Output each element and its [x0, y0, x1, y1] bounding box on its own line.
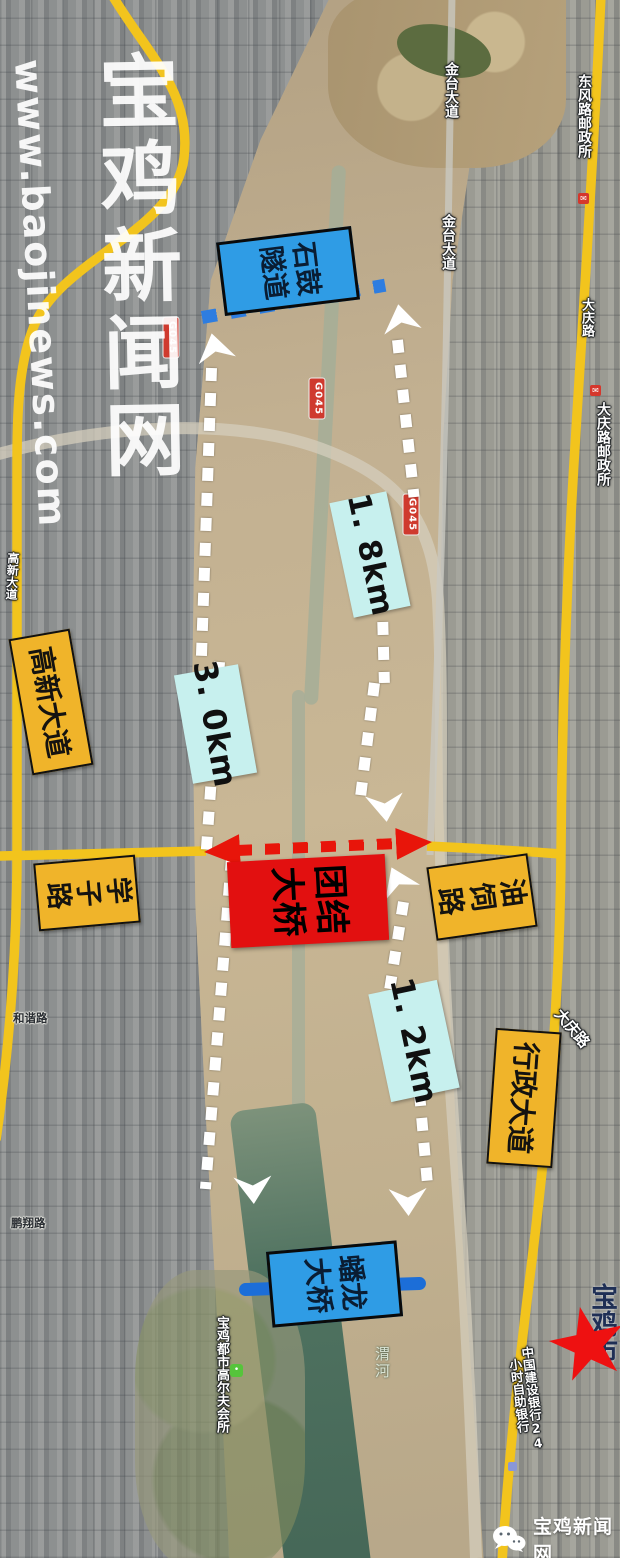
g045-highway-shield: G045: [309, 378, 326, 420]
yousi-road-box: 油饲路: [426, 853, 537, 940]
tunnel-label-text: 石鼓隧道: [252, 237, 325, 305]
site-logo: 宝鸡新闻网: [492, 1512, 620, 1558]
distance-text: 3. 0km: [186, 657, 246, 790]
daqing-post-office-label: 大庆路邮政所: [593, 402, 613, 486]
daqing-road-label-north: 大庆路: [577, 298, 596, 337]
tuanjie-bridge-box: 团结大桥: [227, 854, 389, 948]
panlong-bridge-box: 蟠龙大桥: [266, 1240, 403, 1327]
small-road-label: 鹏翔路: [11, 1215, 46, 1231]
g045-highway-shield: G045: [403, 494, 420, 536]
bank-icon: [508, 1462, 517, 1471]
jintai-avenue-label-south: 金台大道: [438, 214, 458, 270]
post-office-icon: ✉: [590, 385, 601, 396]
gaoxin-road-small-label: 高新大道: [3, 552, 22, 601]
gaoxin-avenue-text: 高新大道: [22, 643, 81, 760]
xuezi-road-text: 学子路: [40, 873, 133, 913]
yellow-road-yousi: [427, 846, 561, 854]
yellow-road-xuezi: [0, 851, 206, 856]
panlong-bridge-text: 蟠龙大桥: [298, 1250, 372, 1319]
site-logo-text: 宝鸡新闻网: [533, 1512, 620, 1558]
watermark-site-name: 宝鸡新闻网: [73, 49, 198, 591]
distance-text: 1. 2km: [382, 974, 446, 1108]
golf-icon: •: [230, 1364, 243, 1377]
dongfeng-post-office-label: 东风路邮政所: [574, 74, 594, 158]
wei-river-label: 渭河: [372, 1346, 393, 1380]
golf-club-label: 宝鸡都市高尔夫会所: [212, 1316, 231, 1433]
tuanjie-bridge-text: 团结大桥: [263, 859, 352, 942]
annotated-satellite-map: 金台大道 金台大道 东风路邮政所 ✉ 大庆路 ✉ 大庆路邮政所 大庆路 G045…: [0, 0, 620, 1558]
post-office-icon: ✉: [578, 193, 589, 204]
yousi-road-text: 油饲路: [433, 874, 531, 920]
xingzheng-avenue-box: 行政大道: [486, 1028, 561, 1168]
xingzheng-avenue-text: 行政大道: [500, 1041, 548, 1156]
jintai-avenue-label-north: 金台大道: [441, 62, 461, 118]
small-road-label: 和谐路: [13, 1010, 48, 1026]
xuezi-road-box: 学子路: [33, 855, 141, 932]
wechat-icon: [492, 1525, 526, 1553]
